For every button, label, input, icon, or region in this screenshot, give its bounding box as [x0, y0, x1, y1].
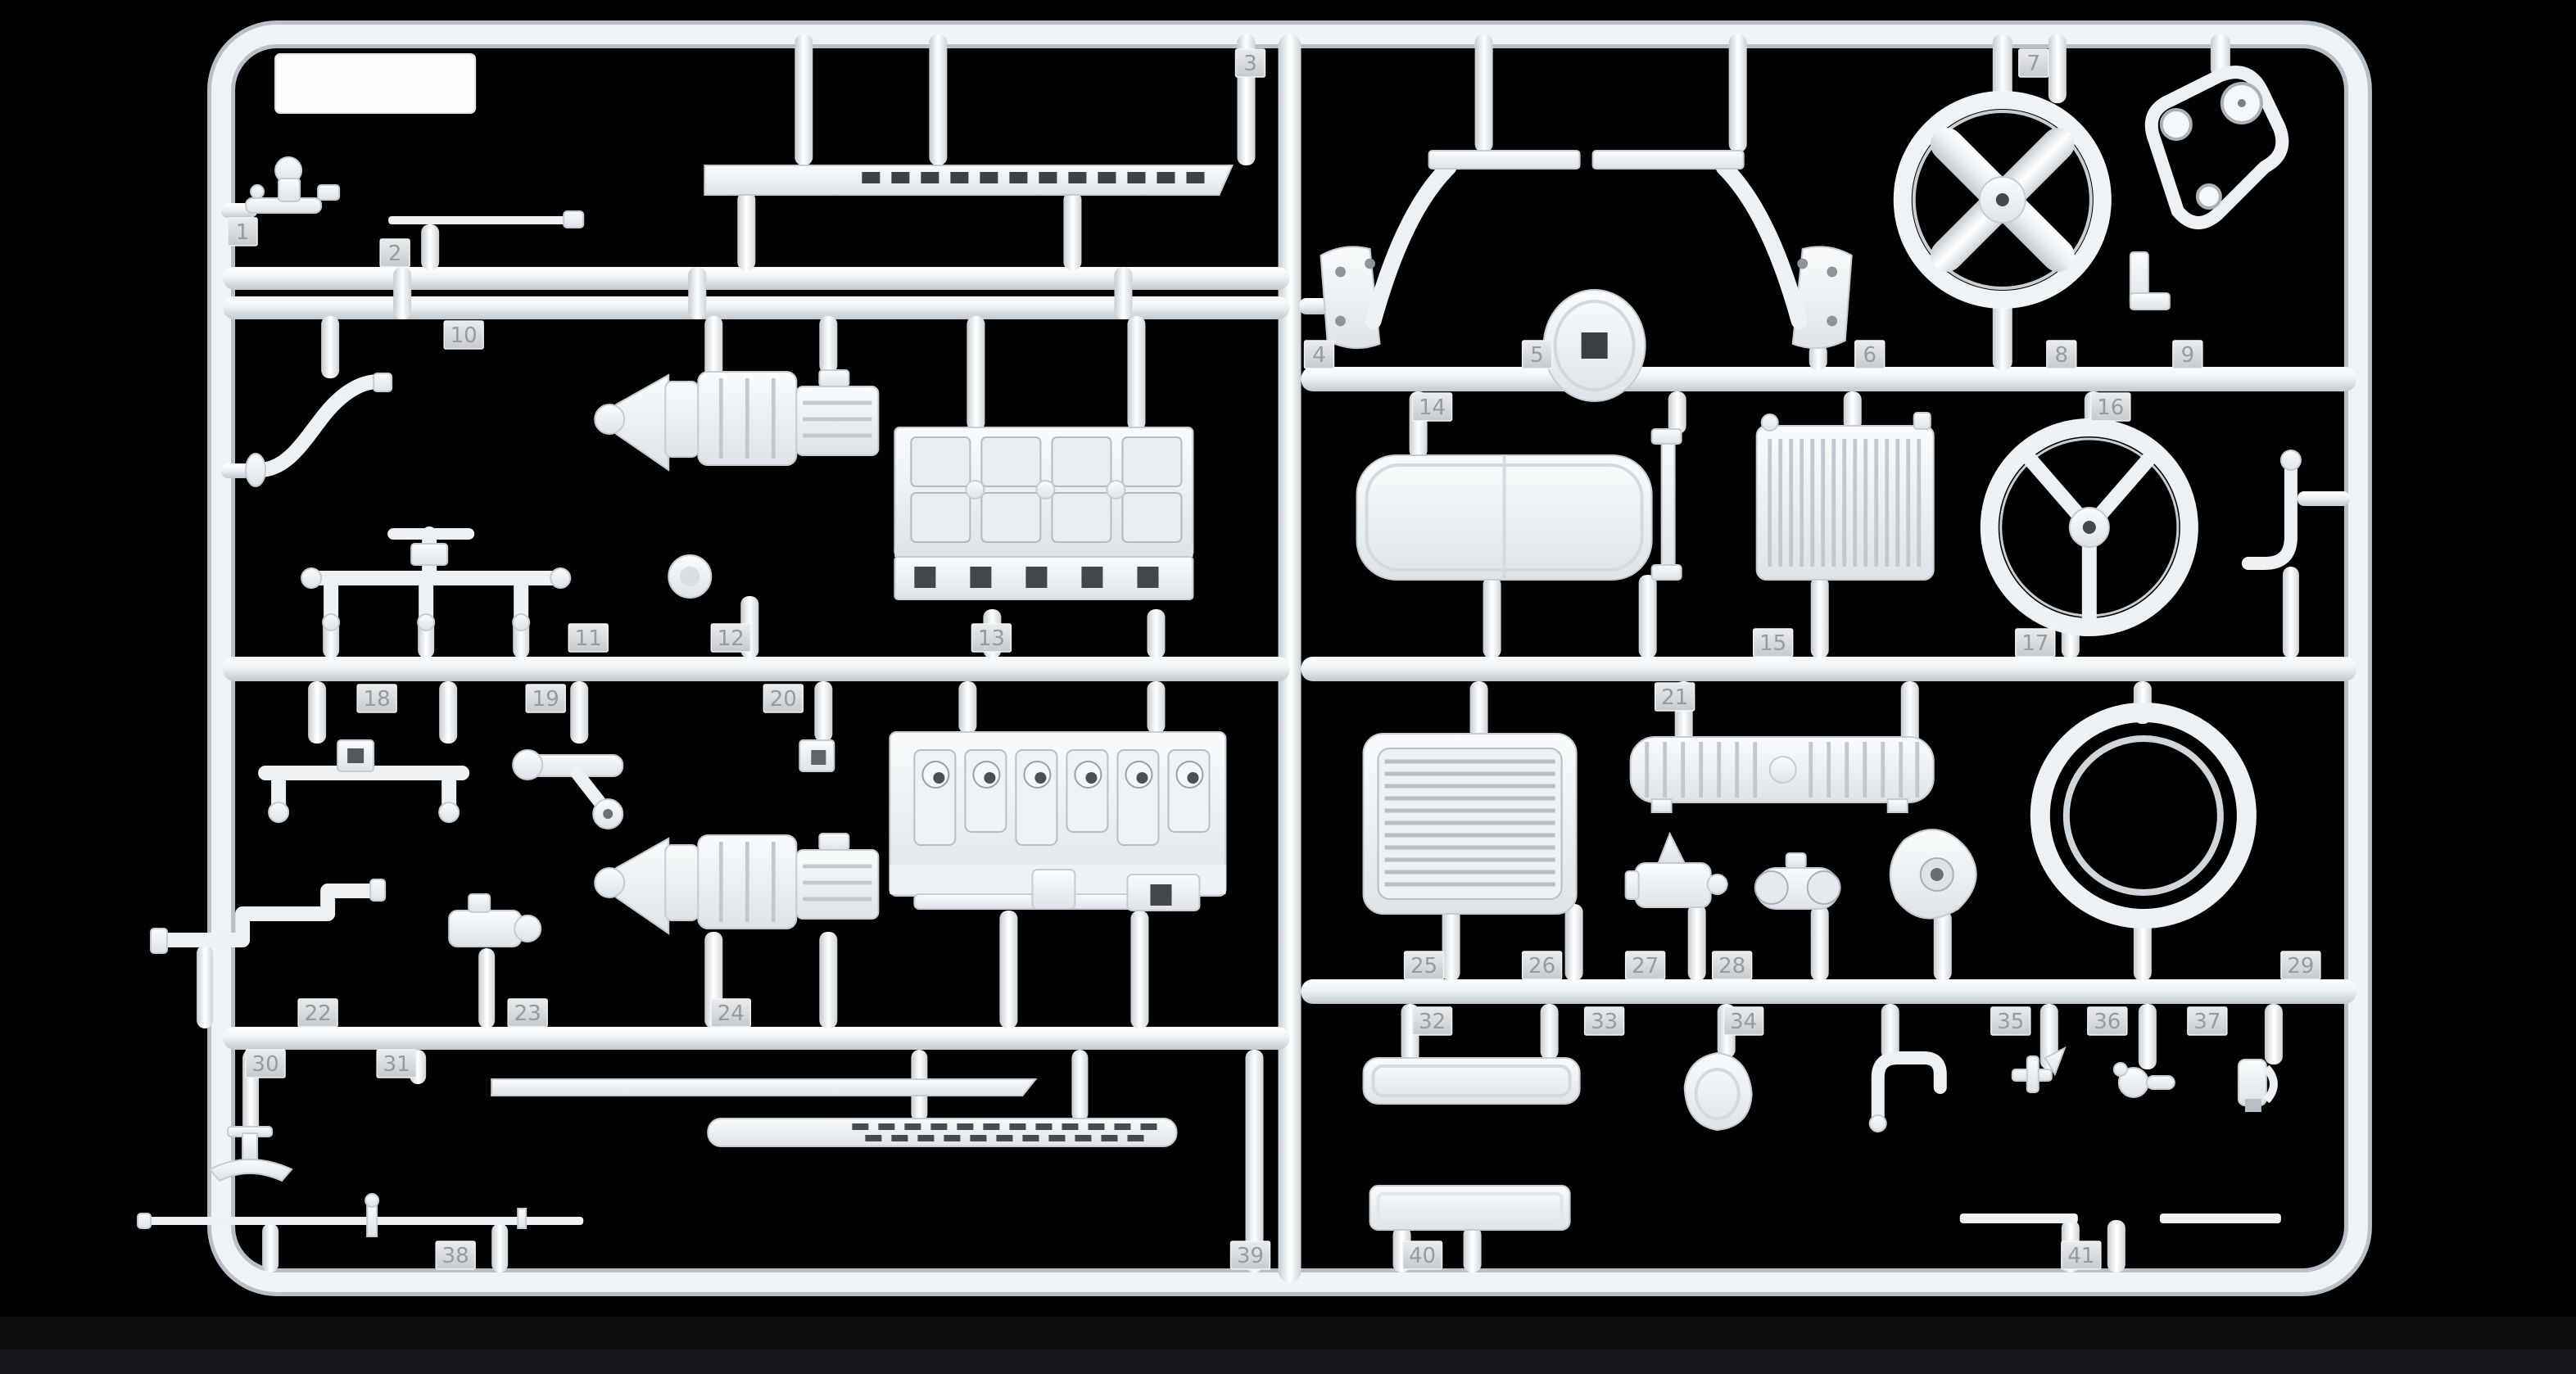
part-slotted-strip — [704, 165, 1232, 195]
part-slotted-muffler — [708, 1119, 1176, 1146]
svg-text:2: 2 — [388, 242, 402, 266]
part-tag-2: 2 — [380, 239, 410, 267]
part-tag-3: 3 — [1235, 49, 1265, 77]
part-tag-22: 22 — [298, 999, 337, 1027]
part-tag-27: 27 — [1626, 951, 1665, 979]
part-tag-6: 6 — [1855, 341, 1885, 368]
svg-text:25: 25 — [1410, 954, 1437, 979]
svg-text:37: 37 — [2193, 1010, 2221, 1034]
part-hub-disc — [1544, 290, 1646, 401]
part-tag-39: 39 — [1230, 1241, 1270, 1269]
part-tag-15: 15 — [1754, 629, 1793, 657]
svg-text:8: 8 — [2055, 343, 2069, 368]
svg-text:41: 41 — [2067, 1244, 2094, 1268]
part-tag-8: 8 — [2047, 341, 2076, 368]
part-cover-plate — [1364, 1058, 1580, 1104]
svg-text:29: 29 — [2287, 954, 2314, 979]
part-tag-37: 37 — [2188, 1007, 2227, 1035]
part-tag-40: 40 — [1403, 1241, 1442, 1269]
svg-text:26: 26 — [1528, 954, 1555, 979]
part-tag-31: 31 — [377, 1050, 416, 1078]
part-tag-24: 24 — [711, 999, 750, 1027]
part-tag-7: 7 — [2019, 49, 2049, 77]
part-tag-30: 30 — [246, 1050, 285, 1078]
part-tag-26: 26 — [1523, 951, 1562, 979]
svg-text:19: 19 — [532, 687, 559, 712]
svg-text:24: 24 — [718, 1001, 745, 1026]
svg-text:27: 27 — [1632, 954, 1659, 979]
svg-text:18: 18 — [364, 687, 391, 712]
svg-text:11: 11 — [575, 626, 602, 651]
part-tag-12: 12 — [711, 624, 750, 652]
svg-text:3: 3 — [1243, 52, 1257, 76]
svg-text:39: 39 — [1237, 1244, 1264, 1268]
svg-text:5: 5 — [1530, 343, 1544, 368]
part-tag-36: 36 — [2088, 1007, 2127, 1035]
svg-text:16: 16 — [2097, 395, 2124, 420]
sprue-photo: 1 2 3 4 5 6 7 8 9 10 11 12 13 14 15 16 1… — [0, 0, 2576, 1374]
part-tag-21: 21 — [1655, 683, 1695, 711]
part-tag-14: 14 — [1413, 393, 1452, 421]
svg-text:35: 35 — [1997, 1010, 2024, 1034]
svg-text:10: 10 — [450, 323, 478, 348]
part-tag-1: 1 — [228, 218, 257, 246]
part-round-cap — [668, 555, 711, 598]
svg-text:4: 4 — [1312, 343, 1326, 368]
svg-text:33: 33 — [1591, 1010, 1618, 1034]
part-tag-10: 10 — [444, 321, 483, 349]
part-tag-41: 41 — [2062, 1241, 2101, 1269]
svg-text:1: 1 — [236, 220, 250, 245]
part-tag-38: 38 — [436, 1241, 475, 1269]
part-tag-34: 34 — [1724, 1007, 1763, 1035]
part-flat-strip — [491, 1079, 1035, 1096]
svg-text:40: 40 — [1409, 1244, 1436, 1268]
svg-text:12: 12 — [718, 626, 745, 651]
part-base-plate — [1370, 1186, 1570, 1230]
svg-text:38: 38 — [442, 1244, 469, 1268]
svg-text:30: 30 — [252, 1052, 279, 1077]
part-radiator-core — [1364, 734, 1577, 914]
svg-text:15: 15 — [1759, 631, 1786, 656]
part-tag-19: 19 — [526, 685, 565, 712]
svg-text:7: 7 — [2027, 52, 2041, 76]
part-tag-4: 4 — [1305, 341, 1334, 368]
svg-text:21: 21 — [1661, 685, 1688, 710]
part-tag-5: 5 — [1523, 341, 1552, 368]
svg-text:28: 28 — [1718, 954, 1745, 979]
part-tag-35: 35 — [1991, 1007, 2030, 1035]
svg-text:23: 23 — [514, 1001, 541, 1026]
part-tag-9: 9 — [2173, 341, 2203, 368]
part-engine-block-top — [894, 427, 1193, 599]
blank-label-plate — [275, 54, 475, 113]
part-seat-pan — [1685, 1053, 1752, 1130]
svg-text:34: 34 — [1730, 1010, 1757, 1034]
svg-text:20: 20 — [770, 687, 797, 712]
part-tag-23: 23 — [508, 999, 547, 1027]
part-tag-25: 25 — [1405, 951, 1444, 979]
part-tag-29: 29 — [2281, 951, 2320, 979]
part-tag-32: 32 — [1413, 1007, 1452, 1035]
part-tag-17: 17 — [2016, 629, 2055, 657]
svg-text:6: 6 — [1863, 343, 1877, 368]
svg-text:22: 22 — [305, 1001, 332, 1026]
part-tag-28: 28 — [1713, 951, 1752, 979]
part-square-fitting — [799, 740, 834, 771]
part-tag-13: 13 — [971, 624, 1011, 652]
part-tag-33: 33 — [1585, 1007, 1624, 1035]
svg-text:17: 17 — [2021, 631, 2049, 656]
svg-text:13: 13 — [978, 626, 1005, 651]
svg-text:36: 36 — [2094, 1010, 2121, 1034]
part-tag-20: 20 — [763, 685, 803, 712]
part-ribbed-tank — [1631, 737, 1934, 812]
svg-text:31: 31 — [383, 1052, 410, 1077]
part-radiator — [1757, 413, 1934, 580]
part-tag-11: 11 — [568, 624, 608, 652]
svg-text:9: 9 — [2181, 343, 2195, 368]
svg-text:32: 32 — [1419, 1010, 1446, 1034]
svg-text:14: 14 — [1419, 395, 1446, 420]
part-engine-block-bottom — [890, 732, 1225, 911]
part-tag-16: 16 — [2091, 393, 2130, 421]
part-tag-18: 18 — [357, 685, 396, 712]
